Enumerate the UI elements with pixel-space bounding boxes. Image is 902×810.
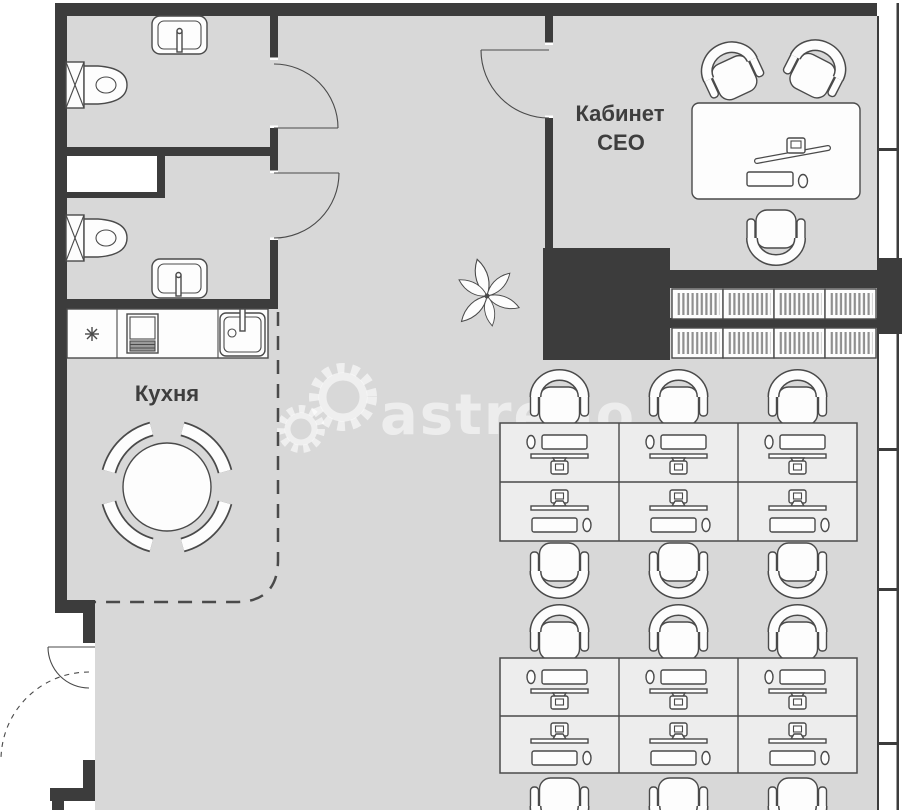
office-chair [769, 372, 827, 425]
vent-niche-side [157, 156, 165, 198]
kitchen-sink-icon [220, 309, 265, 356]
wall-step-top [55, 600, 95, 613]
outer-wall-top [55, 3, 877, 16]
ceo-chair [747, 210, 805, 263]
vent-niche [67, 156, 157, 192]
entrance-jamb-top [83, 613, 95, 643]
bathroom-sink-1 [152, 16, 207, 54]
ceo-office-label-line1: Кабинет [575, 101, 664, 126]
bookshelf-unit [774, 289, 825, 319]
workstation-bank-1 [500, 372, 857, 596]
office-chair [531, 372, 589, 425]
wall-step-bottom [50, 788, 95, 801]
floor-plan: astrego [0, 0, 902, 810]
office-chair [531, 607, 589, 660]
office-chair [769, 543, 827, 596]
bookshelf-row-2 [672, 328, 876, 358]
window-mullion [877, 742, 899, 745]
window-mullion [877, 148, 899, 151]
desk-keyboard-icon [747, 172, 793, 186]
bookshelf-unit [723, 289, 774, 319]
ceo-wall [545, 118, 553, 248]
bookshelf-unit [825, 328, 876, 358]
kitchen-table [123, 443, 211, 531]
hallway-wall-stub-3 [270, 240, 278, 308]
stove-icon [127, 314, 158, 353]
ceo-office-label-line2: СЕО [597, 130, 645, 155]
hallway-wall-stub-2 [270, 128, 278, 173]
bookshelf-unit [672, 289, 723, 319]
shaft-column [543, 248, 670, 360]
window-mullion [877, 448, 899, 451]
office-chair [650, 372, 708, 425]
outer-wall-left-lower [52, 801, 64, 810]
office-chair [531, 543, 589, 596]
office-chair [650, 607, 708, 660]
bookshelf-unit [672, 328, 723, 358]
workstation-bank-2 [500, 607, 857, 810]
bookshelf-unit [825, 289, 876, 319]
office-chair [650, 543, 708, 596]
bathroom-sink-2 [152, 259, 207, 298]
hallway-wall-stub-1 [270, 16, 278, 60]
bathroom-divider-wall [55, 147, 278, 156]
ceo-wall-stub-top [545, 16, 553, 45]
pillar-column [877, 258, 902, 334]
outside-bottom-left [0, 613, 95, 810]
desk-mouse-icon [799, 175, 808, 188]
bookshelf-unit [774, 328, 825, 358]
kitchen-top-wall [55, 299, 278, 309]
vent-niche-bottom [67, 192, 165, 198]
bookshelf-row-1 [672, 289, 876, 319]
bookshelf-unit [723, 328, 774, 358]
ceo-office-bottom-wall [670, 270, 877, 288]
window-mullion [877, 588, 899, 591]
hob-icon [85, 327, 99, 341]
entrance-jamb-bottom [83, 760, 95, 790]
office-chair [769, 607, 827, 660]
kitchen-label: Кухня [135, 381, 199, 406]
